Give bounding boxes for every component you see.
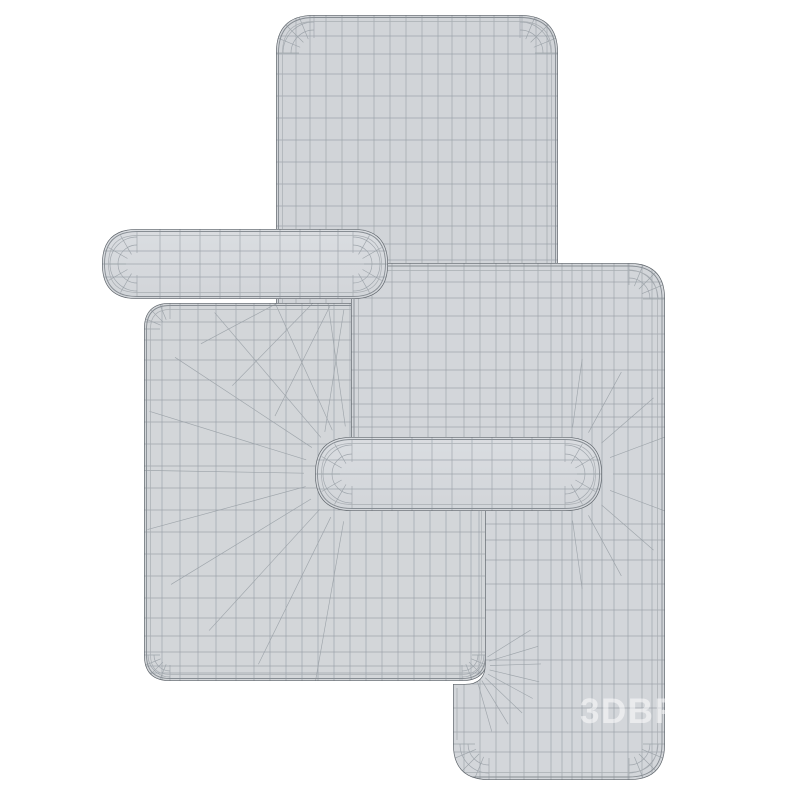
mat-right-handle — [315, 437, 602, 511]
render-stage: 3DBR — [0, 0, 800, 800]
mat-left-handle — [102, 229, 388, 299]
render-canvas: 3DBR — [0, 0, 800, 800]
